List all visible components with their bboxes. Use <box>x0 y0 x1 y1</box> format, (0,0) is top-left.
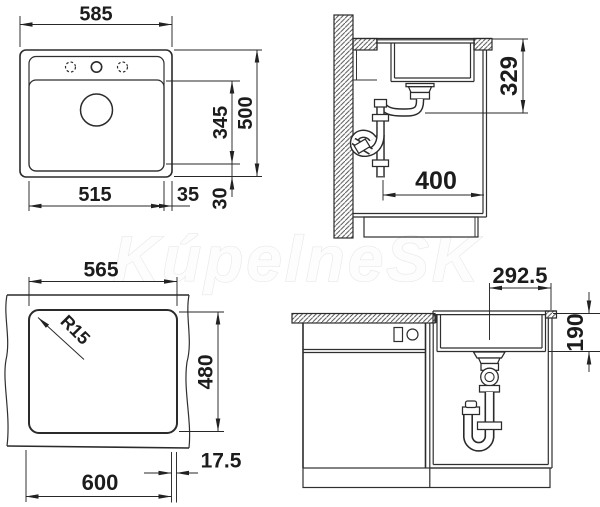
dim-565-label: 565 <box>83 259 118 282</box>
dim-345-label: 345 <box>210 106 232 139</box>
dim-600-label: 600 <box>82 470 119 495</box>
dim-515-label: 515 <box>78 184 111 206</box>
side-section-view: 400 329 <box>334 15 528 238</box>
break-line-left <box>5 295 8 446</box>
control-rect-icon <box>394 328 403 342</box>
dim-35-label: 35 <box>177 184 199 206</box>
watermark-text: KúpelneSK <box>113 223 483 295</box>
plinth-front <box>303 468 550 488</box>
cutout-view: R15 565 480 600 17.5 <box>5 259 242 503</box>
dim-r15-label: R15 <box>56 311 93 348</box>
plan-view: 585 500 345 30 515 35 <box>20 4 262 212</box>
dim-30-label: 30 <box>210 187 232 209</box>
cutout-outline <box>29 310 177 433</box>
tap-hole-left-icon <box>66 62 76 72</box>
drain-trap-side <box>354 84 435 177</box>
dim-329-label: 329 <box>496 56 523 96</box>
drain-hole <box>81 94 113 126</box>
dim-292-5-label: 292.5 <box>492 263 547 288</box>
rim-edge-section <box>546 311 557 318</box>
break-line-right <box>186 295 190 448</box>
drawing-canvas: KúpelneSK 585 500 345 30 515 <box>0 0 600 507</box>
dim-480-label: 480 <box>195 354 218 389</box>
tap-hole-center-icon <box>91 62 101 72</box>
countertop-front <box>292 314 435 324</box>
bowl-front <box>437 315 546 352</box>
countertop-section-right <box>474 39 492 51</box>
tap-hole-right-icon <box>118 62 128 72</box>
dim-17-5-label: 17.5 <box>201 450 242 473</box>
dim-190-label: 190 <box>562 313 588 351</box>
bowl-section <box>391 43 474 82</box>
front-view: 292.5 190 <box>292 263 600 488</box>
dim-500-label: 500 <box>235 96 257 129</box>
dim-585-label: 585 <box>79 4 112 26</box>
wall-hatch <box>334 15 353 238</box>
control-knob-icon <box>407 329 418 340</box>
sink-technical-drawing: KúpelneSK 585 500 345 30 515 <box>0 0 600 507</box>
dim-400-label: 400 <box>415 167 457 195</box>
sink-outer-edge <box>20 50 172 177</box>
adjacent-cabinet-front <box>303 323 426 468</box>
countertop-section-left <box>353 39 377 51</box>
sink-rim-inner-edge <box>29 57 164 172</box>
drain-trap-front <box>463 352 506 447</box>
